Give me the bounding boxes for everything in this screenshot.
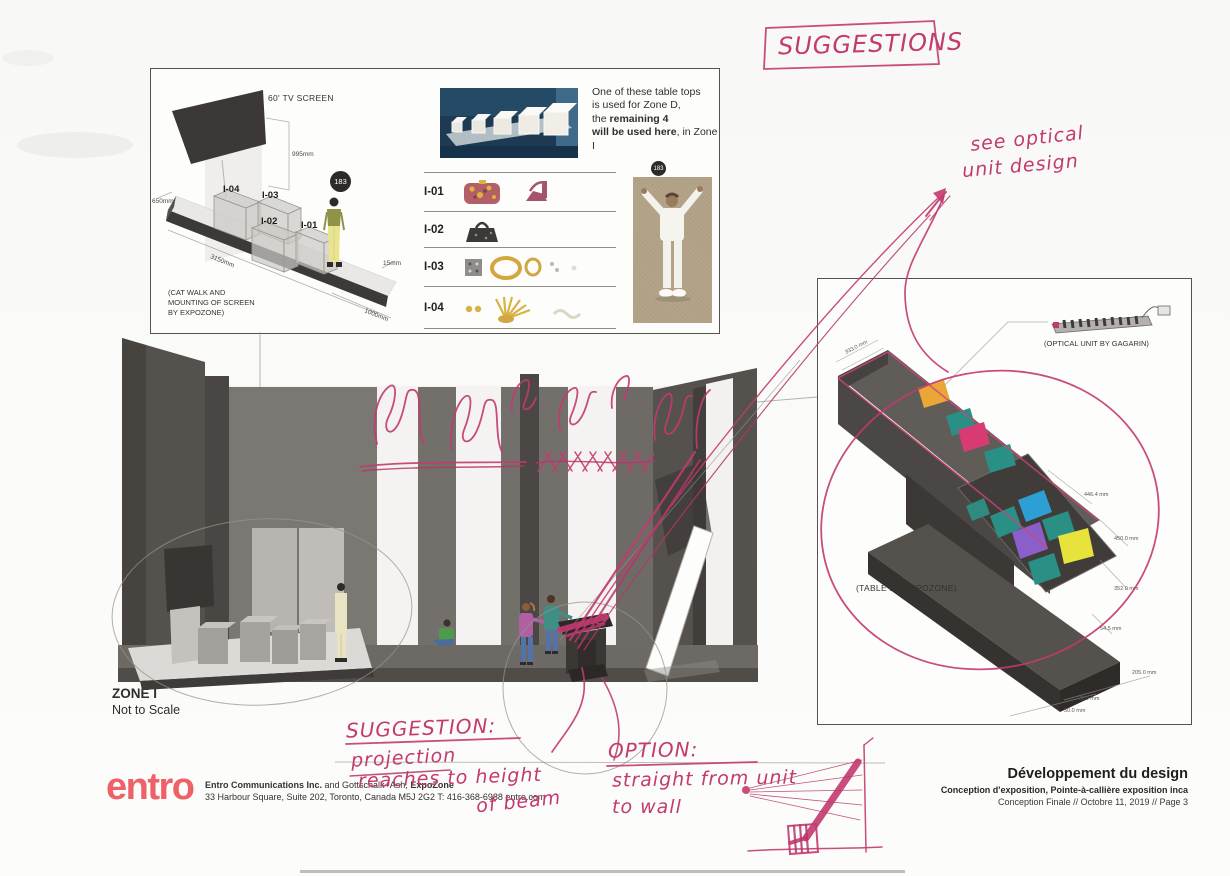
scan-smudge [2, 50, 54, 66]
wall-stripe [616, 387, 653, 652]
item-row-i03: I-03 [424, 247, 616, 286]
pencil-leader-to-panel [757, 397, 817, 402]
render-platform [128, 628, 372, 681]
item-list: I-01 I-02 I-03 [424, 172, 616, 329]
girl-figure [519, 603, 548, 665]
zone-subtitle: Not to Scale [112, 703, 180, 717]
panel-shadow [655, 462, 712, 556]
marker-curl [596, 614, 608, 624]
item-row-i01: I-01 [424, 172, 616, 211]
arrowhead [933, 188, 946, 204]
zone-label: ZONE I Not to Scale [112, 686, 180, 717]
render-interactive-table [558, 613, 613, 682]
pencil-projection-line [560, 360, 800, 640]
dark-pillar-left [205, 376, 229, 654]
figure-number-badge-small: 183 [651, 161, 666, 176]
marker-crosshatch-base [536, 461, 654, 463]
render-door-left [252, 528, 297, 632]
panel-foot-shadow [644, 660, 720, 682]
see-optical-arrow [926, 192, 946, 216]
option-underline [607, 762, 757, 766]
marker-beam-line-2 [362, 466, 524, 471]
right-wall [653, 368, 757, 657]
doc-title: Développement du design [941, 766, 1188, 782]
render-lean-panel [170, 606, 200, 664]
caption-line1: One of these table tops [592, 86, 701, 98]
pencil-oval-catwalk [107, 511, 416, 712]
document-title-block: Développement du design Conception d'exp… [941, 766, 1188, 807]
marker-beam-line [360, 462, 526, 467]
scanned-page: One of these table tops is used for Zone… [0, 0, 1230, 876]
item-row-i04: I-04 [424, 286, 616, 329]
handwritten-option-title: OPTION: [608, 737, 699, 763]
dark-pillar-mid [520, 374, 539, 654]
scan-edge-artifact [300, 870, 905, 873]
item-label: I-04 [424, 302, 462, 314]
handwritten-option-line1: straight from unit [612, 766, 798, 791]
gold-ornaments-icon [462, 292, 602, 324]
wall-stripe [418, 387, 456, 652]
model-photo [633, 177, 712, 323]
jewelry-set-icon [462, 252, 602, 282]
render-tv [164, 545, 214, 612]
entro-logo: entro [106, 766, 194, 809]
zone-render [118, 338, 758, 690]
marker-curve-to-suggestion [552, 668, 584, 752]
figure-number-badge: 183 [330, 171, 351, 192]
item-label: I-01 [424, 186, 462, 198]
caption-line2: is used for Zone D, [592, 99, 681, 111]
marker-projection-ray-2 [578, 460, 700, 648]
wall-stripe [501, 387, 520, 652]
tabletop-caption: One of these table tops is used for Zone… [592, 86, 720, 153]
marker-projection-ray-1 [570, 452, 695, 640]
wall-grey-section [228, 387, 377, 652]
item-label: I-03 [424, 261, 462, 273]
model-figure [633, 177, 712, 323]
left-wall [122, 338, 205, 672]
boy-figure [544, 595, 572, 654]
back-wall-base [228, 386, 698, 652]
marker-table-highlight-2 [566, 624, 604, 636]
pencil-marks [107, 332, 885, 774]
handbag-icon [462, 215, 582, 245]
render-boxes [198, 616, 331, 664]
see-optical-arrow-2 [930, 196, 950, 220]
doc-subtitle: Conception d'exposition, Pointe-à-calliè… [941, 785, 1188, 795]
zone-title: ZONE I [112, 686, 180, 701]
item-row-i02: I-02 [424, 211, 616, 247]
render-door-right [299, 528, 344, 632]
doc-meta: Conception Finale // Octobre 11, 2019 //… [941, 797, 1188, 807]
marker-crosshatch-beam [538, 452, 654, 471]
optical-table-panel [817, 278, 1192, 725]
right-wall-white-stripe [706, 378, 733, 651]
caption-line4-bold: will be used here [592, 126, 677, 138]
tabletop-photo [440, 88, 578, 158]
handwritten-suggestions-title: SUGGESTIONS [778, 28, 964, 61]
floor [118, 645, 758, 675]
scan-smudge [17, 132, 133, 158]
item-label: I-02 [424, 224, 462, 236]
marker-scribbles [375, 376, 710, 452]
floor-edge [118, 668, 758, 682]
handwritten-suggestion-title: SUGGESTION: [346, 713, 497, 742]
marker-table-highlight [560, 617, 606, 630]
handwritten-option-line2: to wall [612, 796, 682, 818]
wall-stripe [538, 387, 568, 652]
tabletop-photo-art [440, 88, 578, 158]
company-name: Entro Communications Inc. [205, 780, 322, 790]
toddler-figure [432, 619, 454, 646]
leaning-projection-panel [646, 526, 713, 676]
option-sketch [742, 738, 882, 854]
company-address: 33 Harbour Square, Suite 202, Toronto, C… [205, 792, 635, 804]
right-wall-corner [693, 386, 706, 652]
caption-line3-bold: remaining 4 [610, 113, 669, 125]
clutch-and-shoe-icon [462, 177, 582, 207]
render-woman-figure [335, 583, 347, 662]
left-wall-shade [122, 338, 146, 672]
caption-line3-pre: the [592, 113, 610, 125]
